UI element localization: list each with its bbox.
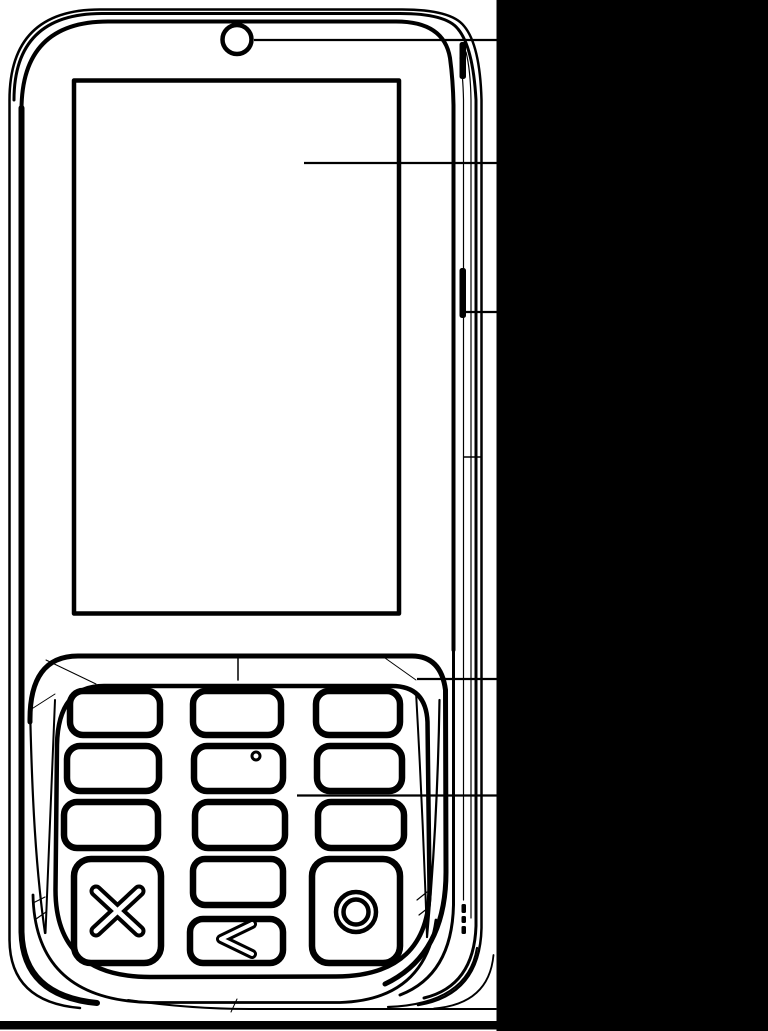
callout-lines [254, 40, 497, 796]
side-dash-2 [462, 916, 467, 923]
display-screen [74, 81, 399, 614]
tray-fold-line-left-1 [46, 660, 96, 684]
side-dash-3 [462, 926, 467, 934]
zero-key [193, 859, 283, 905]
number-key-5 [194, 746, 283, 791]
number-key-1 [70, 691, 160, 735]
right-mask-panel [497, 0, 768, 1031]
number-key-9 [318, 802, 404, 848]
number-key-6 [317, 746, 402, 791]
side-seam-line-2 [466, 52, 471, 918]
number-key-8 [195, 802, 285, 848]
figure-canvas [0, 0, 768, 1031]
bottom-mask-bar [0, 1021, 768, 1030]
tray-fold-line-right [385, 658, 416, 680]
device-drawing [10, 10, 498, 1013]
side-button-upper [460, 42, 467, 79]
side-buttons [460, 42, 467, 934]
side-seam-line-1 [460, 58, 464, 900]
number-key-4 [67, 746, 159, 791]
side-button-lower [460, 268, 467, 318]
left-wing-hatch-2 [36, 912, 46, 919]
number-key-7 [64, 802, 158, 848]
side-dash-1 [462, 904, 467, 913]
front-camera-icon [223, 25, 252, 54]
tray-bottom-tick [231, 999, 237, 1012]
number-key-3 [316, 691, 400, 735]
ok-key [312, 859, 400, 963]
number-key-2 [193, 691, 281, 735]
tactile-dot [252, 752, 260, 760]
body-front-face-outline [22, 22, 454, 651]
left-wing-hatch-1 [33, 897, 45, 903]
